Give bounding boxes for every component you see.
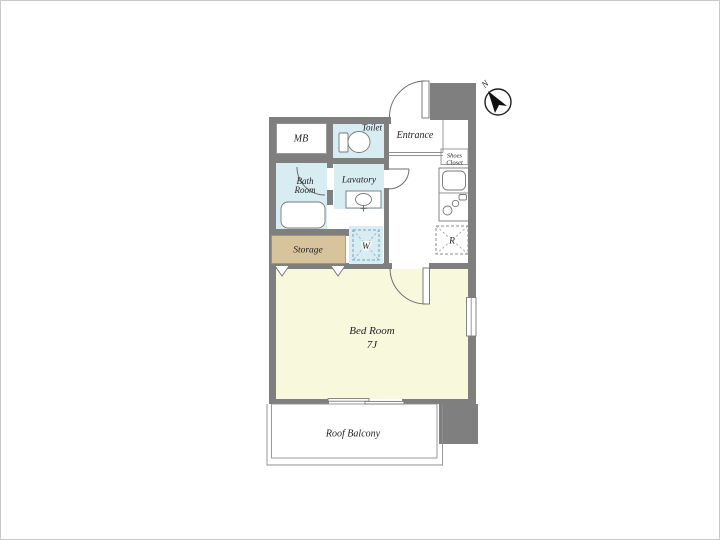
wall — [468, 120, 476, 299]
lavatory-door — [389, 169, 409, 189]
stove-burner-icon — [443, 206, 452, 215]
north-compass: N — [479, 78, 511, 115]
sink-icon — [346, 191, 381, 212]
floor-plan-drawing: N MB Toilet Entrance Shoes Closet Bath R… — [1, 1, 719, 539]
storage-label: Storage — [293, 246, 323, 256]
north-label: N — [479, 78, 492, 91]
stove-burner-icon — [452, 200, 458, 206]
bedroom-size-label: 7J — [367, 339, 379, 351]
kitchen-counter — [439, 168, 469, 221]
door-arc — [390, 81, 426, 117]
wall — [327, 190, 333, 205]
toilet-label: Toilet — [362, 123, 383, 133]
bedroom-side-window — [467, 298, 477, 337]
window-panel — [365, 401, 404, 404]
washer-label: W — [362, 242, 371, 252]
toilet-icon — [339, 132, 370, 153]
wall — [384, 188, 389, 264]
stove-grill-icon — [459, 195, 467, 201]
door-leaf — [423, 268, 430, 304]
wall — [384, 164, 389, 170]
wall — [384, 117, 389, 164]
wall — [327, 163, 333, 168]
toilet-tank — [339, 133, 348, 152]
floor-plan-canvas: N MB Toilet Entrance Shoes Closet Bath R… — [0, 0, 720, 540]
shoes-closet-label-line1: Shoes — [447, 153, 463, 160]
door-leaf — [422, 81, 429, 118]
balcony-sliding-window — [328, 399, 404, 404]
entrance-door — [390, 81, 430, 118]
bedroom-label: Bed Room — [349, 325, 395, 337]
shoes-closet-label-line2: Closet — [446, 160, 463, 167]
wall — [430, 83, 476, 120]
bathtub-icon — [281, 202, 325, 228]
roof-balcony-label: Roof Balcony — [325, 429, 381, 440]
wall — [429, 263, 476, 269]
mb-label: MB — [293, 134, 308, 145]
refrigerator-label: R — [448, 237, 455, 247]
wall — [269, 229, 349, 236]
sink-basin — [356, 194, 372, 206]
wall — [333, 158, 389, 164]
window-panel — [328, 399, 369, 402]
wall — [468, 335, 476, 404]
north-arrow-icon — [488, 91, 507, 113]
toilet-bowl — [348, 132, 370, 153]
lavatory-label: Lavatory — [341, 176, 377, 186]
wall — [439, 404, 478, 444]
door-arc — [389, 169, 409, 189]
entrance-label: Entrance — [396, 130, 434, 141]
bath-room-label-line2: Room — [294, 185, 316, 195]
wall — [269, 154, 333, 163]
kitchen-sink-icon — [443, 171, 466, 190]
